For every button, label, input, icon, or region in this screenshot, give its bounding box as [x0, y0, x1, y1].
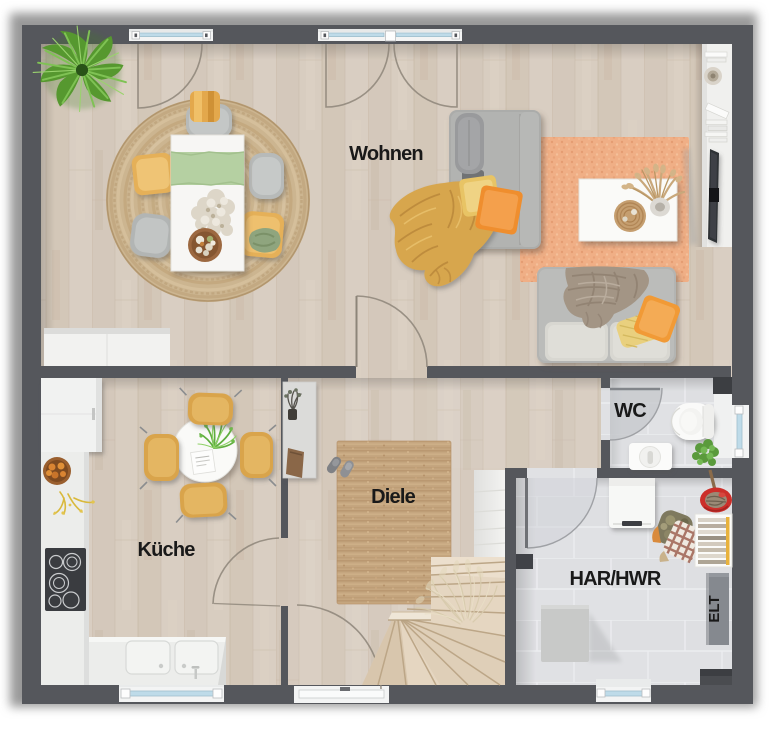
svg-text:HAR/HWR: HAR/HWR: [569, 568, 661, 590]
svg-text:Küche: Küche: [137, 539, 195, 561]
svg-text:Wohnen: Wohnen: [349, 143, 423, 165]
svg-text:Diele: Diele: [371, 486, 415, 508]
svg-text:WC: WC: [614, 400, 646, 422]
svg-text:ELT: ELT: [706, 595, 723, 622]
